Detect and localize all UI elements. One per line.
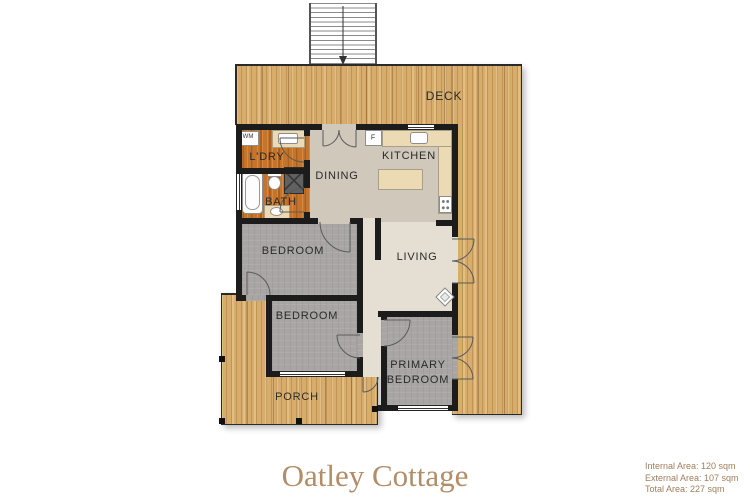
- area-internal: Internal Area: 120 sqm: [645, 461, 750, 473]
- room-label-laundry: L'DRY: [249, 151, 284, 163]
- area-total: Total Area: 227 sqm: [645, 484, 750, 496]
- fridge-label: F: [371, 135, 375, 142]
- area-external: External Area: 107 sqm: [645, 473, 750, 485]
- room-label-bedroom2: BEDROOM: [276, 310, 338, 322]
- room-label-dining: DINING: [315, 170, 358, 182]
- area-summary: Internal Area: 120 sqm External Area: 10…: [645, 461, 750, 496]
- plan-title: Oatley Cottage: [282, 458, 469, 494]
- room-label-porch: PORCH: [275, 391, 319, 403]
- room-label-kitchen: KITCHEN: [382, 150, 436, 162]
- utility-diamond-icon: [436, 288, 454, 306]
- primary-bedroom-line2: BEDROOM: [387, 373, 449, 388]
- floorplan-canvas: DECK L'DRY BATH DINING KITCHEN BEDROOM L…: [0, 0, 750, 500]
- room-label-deck: DECK: [426, 89, 463, 103]
- primary-bedroom-line1: PRIMARY: [387, 358, 449, 373]
- room-label-bedroom1: BEDROOM: [262, 245, 324, 257]
- room-label-primary-bedroom: PRIMARY BEDROOM: [387, 358, 449, 388]
- door-swing-arcs: [0, 0, 750, 500]
- room-label-bath: BATH: [265, 196, 297, 208]
- room-label-living: LIVING: [397, 251, 438, 263]
- stair-direction-arrow: [339, 6, 347, 65]
- washing-machine-label: WM: [243, 134, 254, 140]
